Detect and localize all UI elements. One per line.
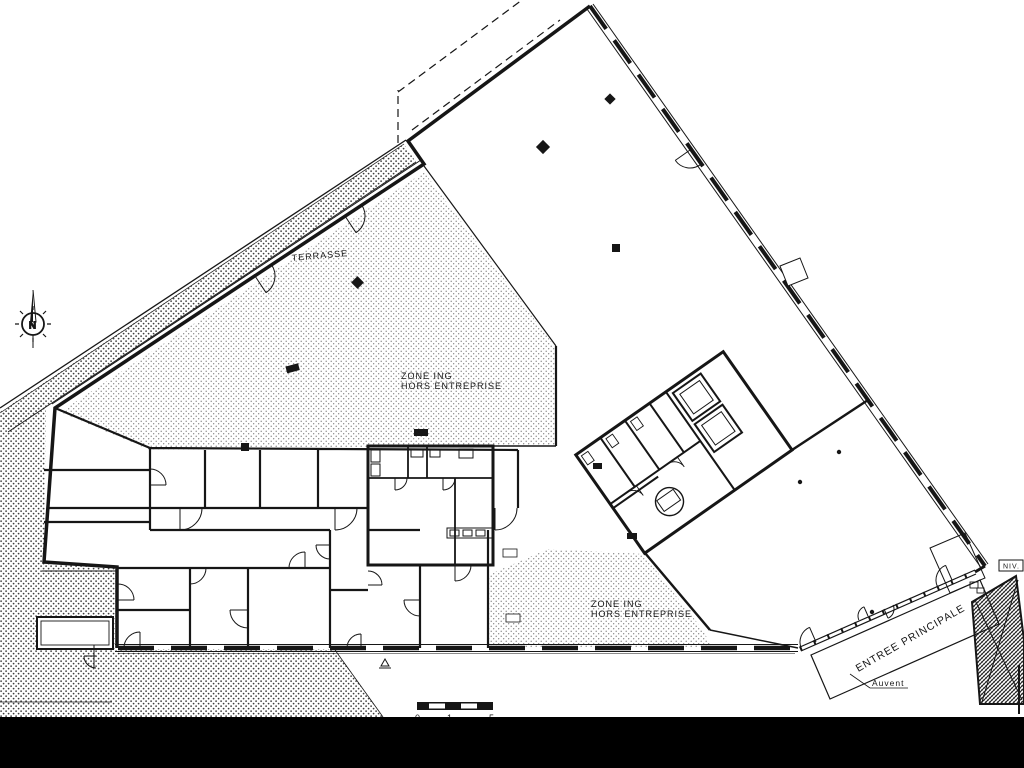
canopy-outline — [798, 450, 999, 699]
ramp-hatch — [972, 576, 1024, 714]
bottom-band — [0, 717, 1024, 768]
niveau-tag-label: NIV. — [1003, 564, 1020, 571]
floor-plan-canvas: NIV. TERRASSE ZONE ING HORS ENTREPRISE Z… — [0, 0, 1024, 768]
porch-vestibule — [930, 533, 985, 593]
svg-text:Auvent: Auvent — [872, 678, 904, 688]
svg-text:HORS ENTREPRISE: HORS ENTREPRISE — [401, 381, 502, 391]
sanitary-fixtures — [371, 449, 493, 538]
svg-text:ZONE ING: ZONE ING — [401, 371, 453, 381]
floor-plan-viewer: NIV. TERRASSE ZONE ING HORS ENTREPRISE Z… — [0, 0, 1024, 768]
niveau-tag: NIV. — [999, 560, 1023, 571]
north-label: N — [29, 321, 37, 332]
svg-text:ZONE ING: ZONE ING — [591, 599, 643, 609]
level-tag — [503, 549, 517, 557]
roof-dashed-lines — [398, 0, 560, 143]
north-arrow-icon: N — [15, 290, 51, 348]
core-cluster — [576, 352, 792, 554]
zone-hatch-areas — [60, 172, 712, 648]
svg-text:HORS ENTREPRISE: HORS ENTREPRISE — [591, 609, 692, 619]
level-tag — [506, 614, 520, 622]
exit-marker — [379, 659, 391, 668]
sanitary-block — [368, 446, 493, 565]
